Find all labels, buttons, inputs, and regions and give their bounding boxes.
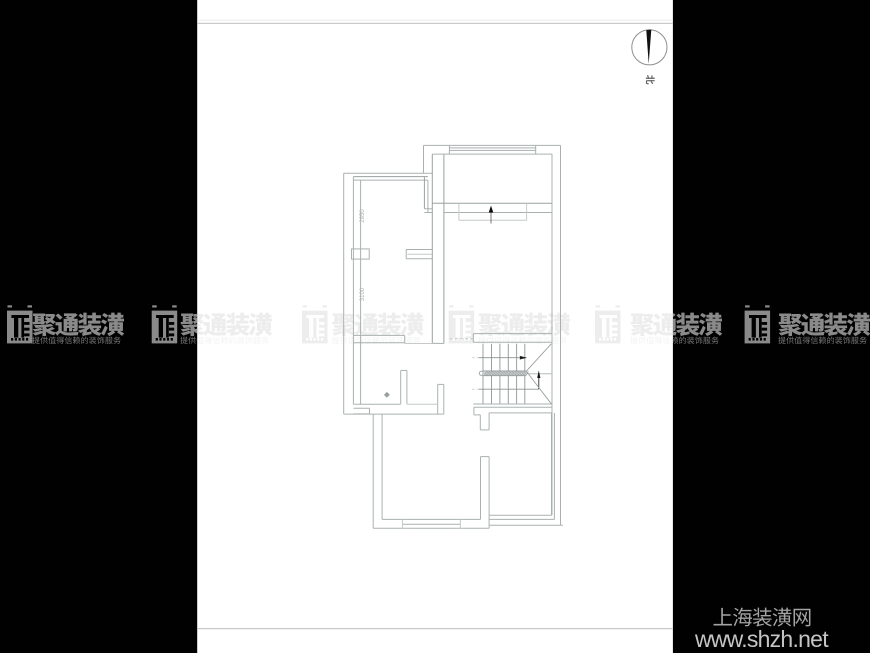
svg-text:www.shzh.net: www.shzh.net (694, 626, 829, 652)
svg-text:3100: 3100 (360, 287, 366, 301)
svg-text:2850: 2850 (360, 209, 366, 223)
